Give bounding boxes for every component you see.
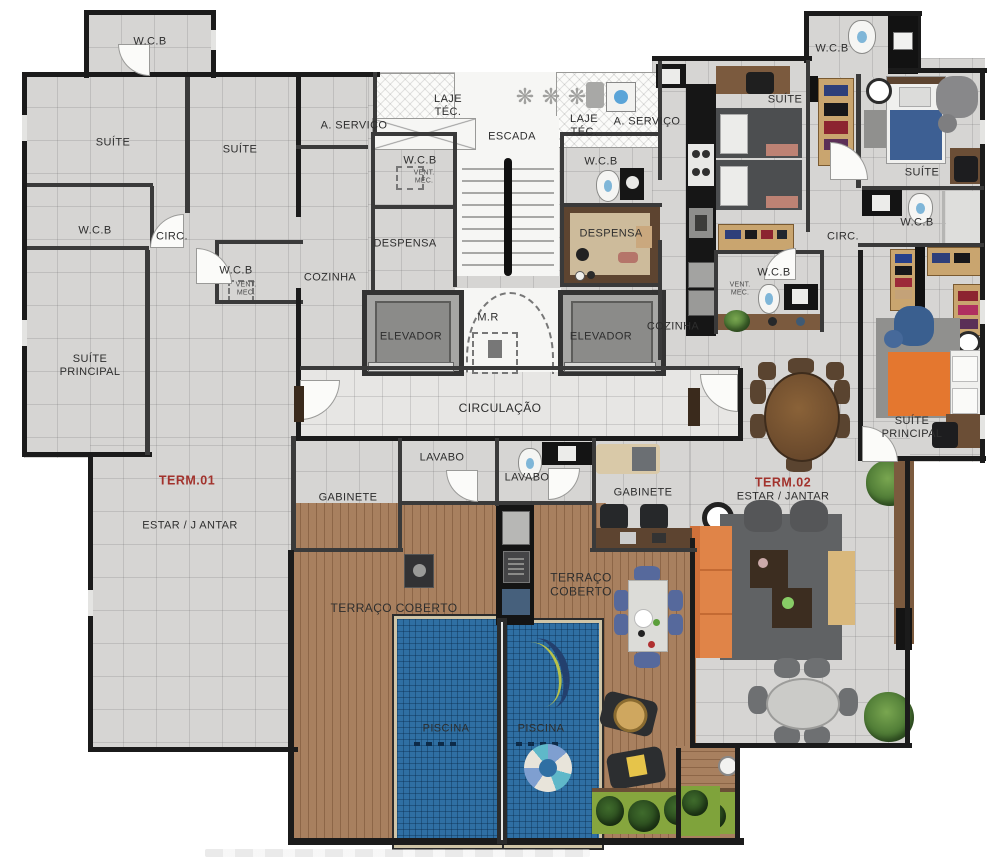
wall [560,283,662,287]
label-lavabo-left: LAVABO [420,451,465,464]
label-wcb-core-right: W.C.B [584,155,617,168]
pantry-item [587,271,595,279]
wardrobe [927,247,983,276]
window [22,115,27,141]
label-estar-left: ESTAR / J ANTAR [142,519,237,532]
armchair [744,500,782,532]
dining-table [764,372,840,462]
wall [293,436,743,441]
label-laje-right: LAJE TÉC. [570,113,598,139]
label-terraco-left: TERRAÇO COBERTO [331,601,458,615]
window [980,300,985,324]
label-gabinete-right: GABINETE [614,486,673,499]
appliance [688,262,716,288]
floor-unit1-upper [24,74,302,458]
label-circ-right: CIRC. [827,230,859,243]
decor-knob [768,317,777,326]
wall [371,132,457,136]
label-elevador-right: ELEVADOR [570,330,632,343]
wall [560,203,662,207]
wall [300,366,740,370]
wall [27,246,149,250]
dining-chair [826,362,844,380]
wall [888,68,987,73]
wall [371,205,457,209]
closet-black [888,16,918,74]
toilet-icon [758,284,780,314]
wall [560,132,564,287]
wall [590,548,697,552]
pool-depth-marks [414,742,458,746]
deck-chair-blue [634,652,660,668]
pool-float [524,744,572,792]
grill-icon [503,551,530,583]
patio-chair [748,686,768,714]
patio-table [766,678,840,730]
fan-icon: ❋ [516,84,534,110]
armchair [790,500,828,532]
speaker-icon [866,78,892,104]
window [211,30,216,50]
label-circ-left: CIRC. [156,230,188,243]
label-mr: M.R [477,311,498,324]
label-wcb-topright: W.C.B [815,42,848,55]
dining-chair [750,380,766,404]
wall [22,452,152,457]
deck-chair-blue [614,614,629,635]
watermark-strip [205,849,590,857]
label-despensa-right: DESPENSA [579,227,642,240]
decor-knob [796,317,805,326]
coffee-table [772,588,812,628]
wall [690,743,912,748]
label-suite-right: SUÍTE [905,166,939,179]
bed-principal [888,350,980,418]
shrub-icon [628,800,660,832]
wall [291,436,296,552]
daybed [596,444,660,474]
shower-glass [942,191,945,243]
closet-panel [915,246,925,310]
office-chair [600,504,628,530]
pouf [938,114,957,133]
entry-door-unit1 [294,386,304,422]
shrub-icon [596,796,624,826]
wall [714,250,824,254]
wall [145,250,150,455]
patio-chair [804,658,830,678]
grill-icon [404,554,434,588]
deck-chair-blue [668,590,683,611]
wall [84,10,89,78]
label-term-2: TERM.02 [755,476,811,491]
wall [738,368,743,438]
wall [806,60,810,232]
toilet-icon [596,170,620,202]
toilet-icon [848,20,876,54]
wall [398,438,402,552]
stair-rail [504,158,512,276]
wall [690,538,695,745]
window [88,590,93,616]
twin-bed [716,160,802,210]
wall [453,135,457,287]
wall [400,501,594,505]
pantry-item [576,248,589,261]
label-term-1: TERM.01 [159,474,215,489]
patio-chair [774,658,800,678]
wall [27,183,153,187]
deck-chair-blue [668,614,683,635]
label-laje-left: LAJE TÉC. [434,93,462,119]
wall [22,72,380,77]
wall [592,438,596,552]
office-desk [594,528,692,550]
fan-icon: ❋ [542,84,560,110]
wall [288,550,294,845]
shoe-rack [890,249,917,311]
pantry-item [575,271,585,281]
vanity-counter [542,442,592,465]
floor-plan: ❋ ❋ ❋ [0,0,1000,861]
label-ventmec-right: VENT. MEC. [730,282,751,299]
wall [185,77,190,213]
office-chair [640,504,668,530]
laundry-tank [586,82,604,108]
wall [820,250,824,332]
label-suite-right-twin: SUÍTE [768,93,802,106]
dining-chair [758,362,776,380]
patio-chair [838,688,858,716]
label-terraco-right: TERRAÇO COBERTO [550,571,612,600]
fan-icon: ❋ [568,84,586,110]
label-estar-right: ESTAR / JANTAR [737,490,830,503]
label-wcb-left-1: W.C.B [78,224,111,237]
label-suite-left-1: SUÍTE [96,136,130,149]
label-circulacao: CIRCULAÇÃO [459,401,542,415]
label-cozinha-right: COZINHA [647,320,699,333]
window [980,415,985,439]
label-lavabo-right: LAVABO [505,471,550,484]
vanity-counter [862,190,902,216]
wall [858,243,984,247]
coffee-table [750,550,788,588]
sofa-orange [690,526,732,658]
wall [804,11,809,63]
label-escada: ESCADA [488,130,536,143]
label-wcb-topleft: W.C.B [133,35,166,48]
machine-equipment [488,340,502,358]
stove-icon [688,144,714,186]
pantry-item [618,252,638,263]
wall [84,10,216,15]
label-ventmec-core: VENT. MEC. [414,170,435,187]
label-cozinha-left: COZINHA [304,271,356,284]
shrub-icon [682,790,708,816]
label-wcb-core-left: W.C.B [403,154,436,167]
window [22,320,27,346]
label-suite-left-2: SUÍTE [223,143,257,156]
label-gabinete-left: GABINETE [319,491,378,504]
mini-fridge [502,511,530,545]
floor-unit1-living [90,445,296,749]
label-suite-principal-left: SUÍTE PRINCIPAL [60,353,121,379]
label-suite-principal-right: SUÍTE PRINCIPAL [882,415,943,441]
wall [495,438,499,506]
twin-bed [716,108,802,158]
desk-chair [954,156,978,182]
wall [658,240,662,360]
desk-chair [746,72,774,94]
kitchen-sink [689,208,713,238]
vanity-counter [784,284,818,310]
label-wcb-left-2: W.C.B [219,264,252,277]
entry-door-unit2 [688,388,700,426]
wall [371,132,375,290]
bench [828,551,855,625]
wall [905,458,910,748]
wall [291,548,403,552]
wall [676,748,681,843]
wall [296,145,368,149]
label-elevador-left: ELEVADOR [380,330,442,343]
washing-machine-icon [606,82,636,112]
wall [714,250,718,334]
appliance [688,290,716,316]
label-wcb-right-2: W.C.B [900,216,933,229]
cooler-box [502,589,530,615]
label-despensa-left: DESPENSA [373,237,436,250]
wall [215,240,303,244]
label-servico-right: A. SERVIÇO [614,115,681,128]
armchair [936,76,978,118]
wall [735,748,740,843]
shower-floor [946,191,980,245]
sink-icon [626,176,639,189]
wall [88,747,298,752]
label-piscina-right: PISCINA [518,722,565,735]
deck-chair-blue [614,590,629,611]
wall [862,186,984,190]
pouf [884,330,903,348]
wall [652,56,812,61]
pool-divider-line [501,622,503,840]
label-piscina-left: PISCINA [423,722,470,735]
window [980,120,985,144]
wall [215,300,303,304]
label-ventmec-left: VENT. MEC. [236,282,257,299]
label-wcb-right-vent: W.C.B [757,266,790,279]
plant-icon [724,310,750,332]
label-servico-left: A. SERVIÇO [321,119,388,132]
deck-table [628,580,668,652]
